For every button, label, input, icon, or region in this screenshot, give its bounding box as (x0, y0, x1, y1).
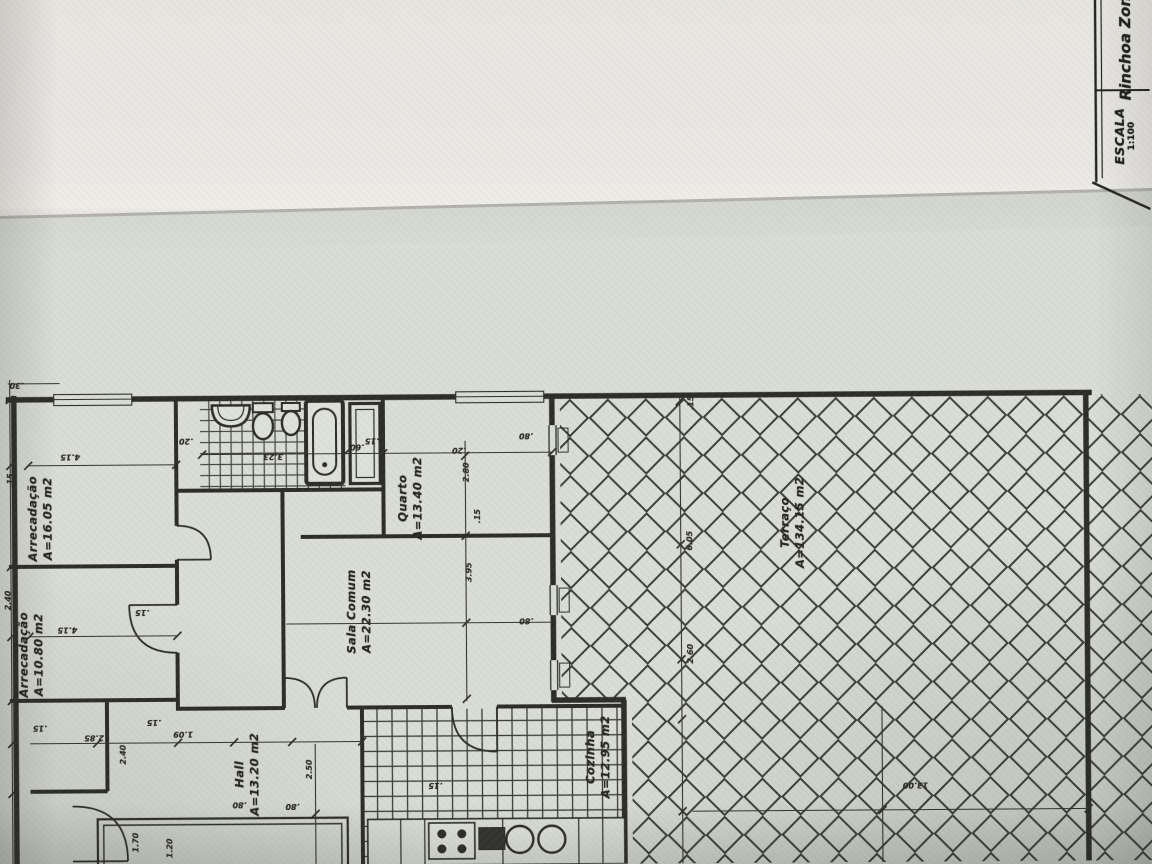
title-block-zone-label: Rinchoa Zona (1086, 0, 1152, 91)
title-block-scale: ESCALA 1:100 (1084, 88, 1152, 185)
room-label-arrecadacao-2: ArrecadaçãoA=10.80 m2 (0, 584, 102, 725)
door-arc (177, 526, 211, 560)
bathtub-drain (322, 462, 327, 467)
scale-label: ESCALA (1111, 108, 1126, 165)
sink-bowl (538, 826, 565, 853)
room-name: Hall (232, 761, 247, 788)
dimension-value: 4.15 (48, 452, 92, 461)
dimension-value: 1.70 (131, 821, 140, 864)
dimension-value: 3.23 (251, 452, 295, 461)
floor-plan-layer: Rinchoa Zona ESCALA 1:100 ArrecadaçãoA=1… (0, 0, 1152, 864)
dimension-value: .20 (437, 446, 481, 455)
room-area: A=134.15 m2 (792, 477, 808, 568)
dimension-value: .30 (0, 381, 39, 390)
sink-bowl (506, 826, 533, 853)
double-door-arc (317, 678, 347, 708)
dimension-value: .15 (132, 718, 176, 727)
dimension-value: .80 (271, 802, 315, 811)
dimension-value: 13.00 (893, 780, 937, 789)
scanned-floorplan-photo: Rinchoa Zona ESCALA 1:100 ArrecadaçãoA=1… (0, 0, 1152, 864)
room-label-sala-comum: Sala ComumA=22.30 m2 (289, 541, 430, 682)
room-name: Arrecadação (16, 612, 32, 698)
dimension-value: .80 (504, 431, 548, 440)
room-area: A=13.40 m2 (410, 457, 426, 540)
scale-value: 1:100 (1126, 122, 1136, 151)
stove (429, 823, 475, 859)
dimension-value: .15 (18, 724, 62, 733)
dimension-value: 3.95 (464, 550, 473, 594)
dimension-value: .15 (473, 494, 482, 538)
room-label-hall: HallA=13.20 m2 (177, 704, 318, 845)
dimension-value: 2.50 (305, 747, 314, 791)
room-label-terraco: TerraçoA=134.15 m2 (722, 452, 863, 593)
dimension-value: 2.80 (462, 450, 471, 494)
dimension-value: .15 (686, 381, 695, 425)
toilet-tank (253, 403, 273, 412)
room-label-arrecadacao-1: ArrecadaçãoA=16.05 m2 (0, 448, 111, 589)
room-name: Sala Comum (344, 569, 360, 653)
dimension-value: 6.05 (685, 519, 694, 563)
room-name: Terraço (778, 497, 793, 548)
dimension-value: .80 (218, 800, 262, 809)
room-name: Quarto (395, 475, 410, 522)
dimension-value: .15 (120, 608, 164, 617)
sink-drainer (479, 828, 505, 850)
dimension-value: .20 (164, 437, 208, 446)
dimension-value: .15 (6, 458, 15, 502)
bidet-bowl (282, 411, 300, 435)
dimension-value: .15 (350, 436, 394, 445)
door-arc (73, 806, 128, 861)
dimension-value: 1.09 (161, 730, 205, 739)
room-area: A=16.05 m2 (40, 477, 56, 560)
dimension-value: 1.20 (165, 826, 174, 864)
dimension-value: 2.40 (4, 578, 13, 622)
dimension-value: 2.85 (72, 733, 116, 742)
dimension-value: .15 (413, 781, 457, 790)
dimension-value: 4.15 (45, 625, 89, 634)
room-name: Cozinha (583, 730, 598, 784)
dimension-value: 2.40 (119, 733, 128, 777)
dimension-value: 2.60 (686, 632, 695, 676)
dimension-value: .80 (504, 616, 548, 625)
room-name: Arrecadação (25, 476, 41, 562)
room-area: A=22.30 m2 (359, 570, 375, 653)
room-label-cozinha: CozinhaA=12.95 m2 (528, 686, 669, 827)
room-area: A=12.95 m2 (598, 715, 614, 798)
toilet-bowl (253, 413, 273, 439)
